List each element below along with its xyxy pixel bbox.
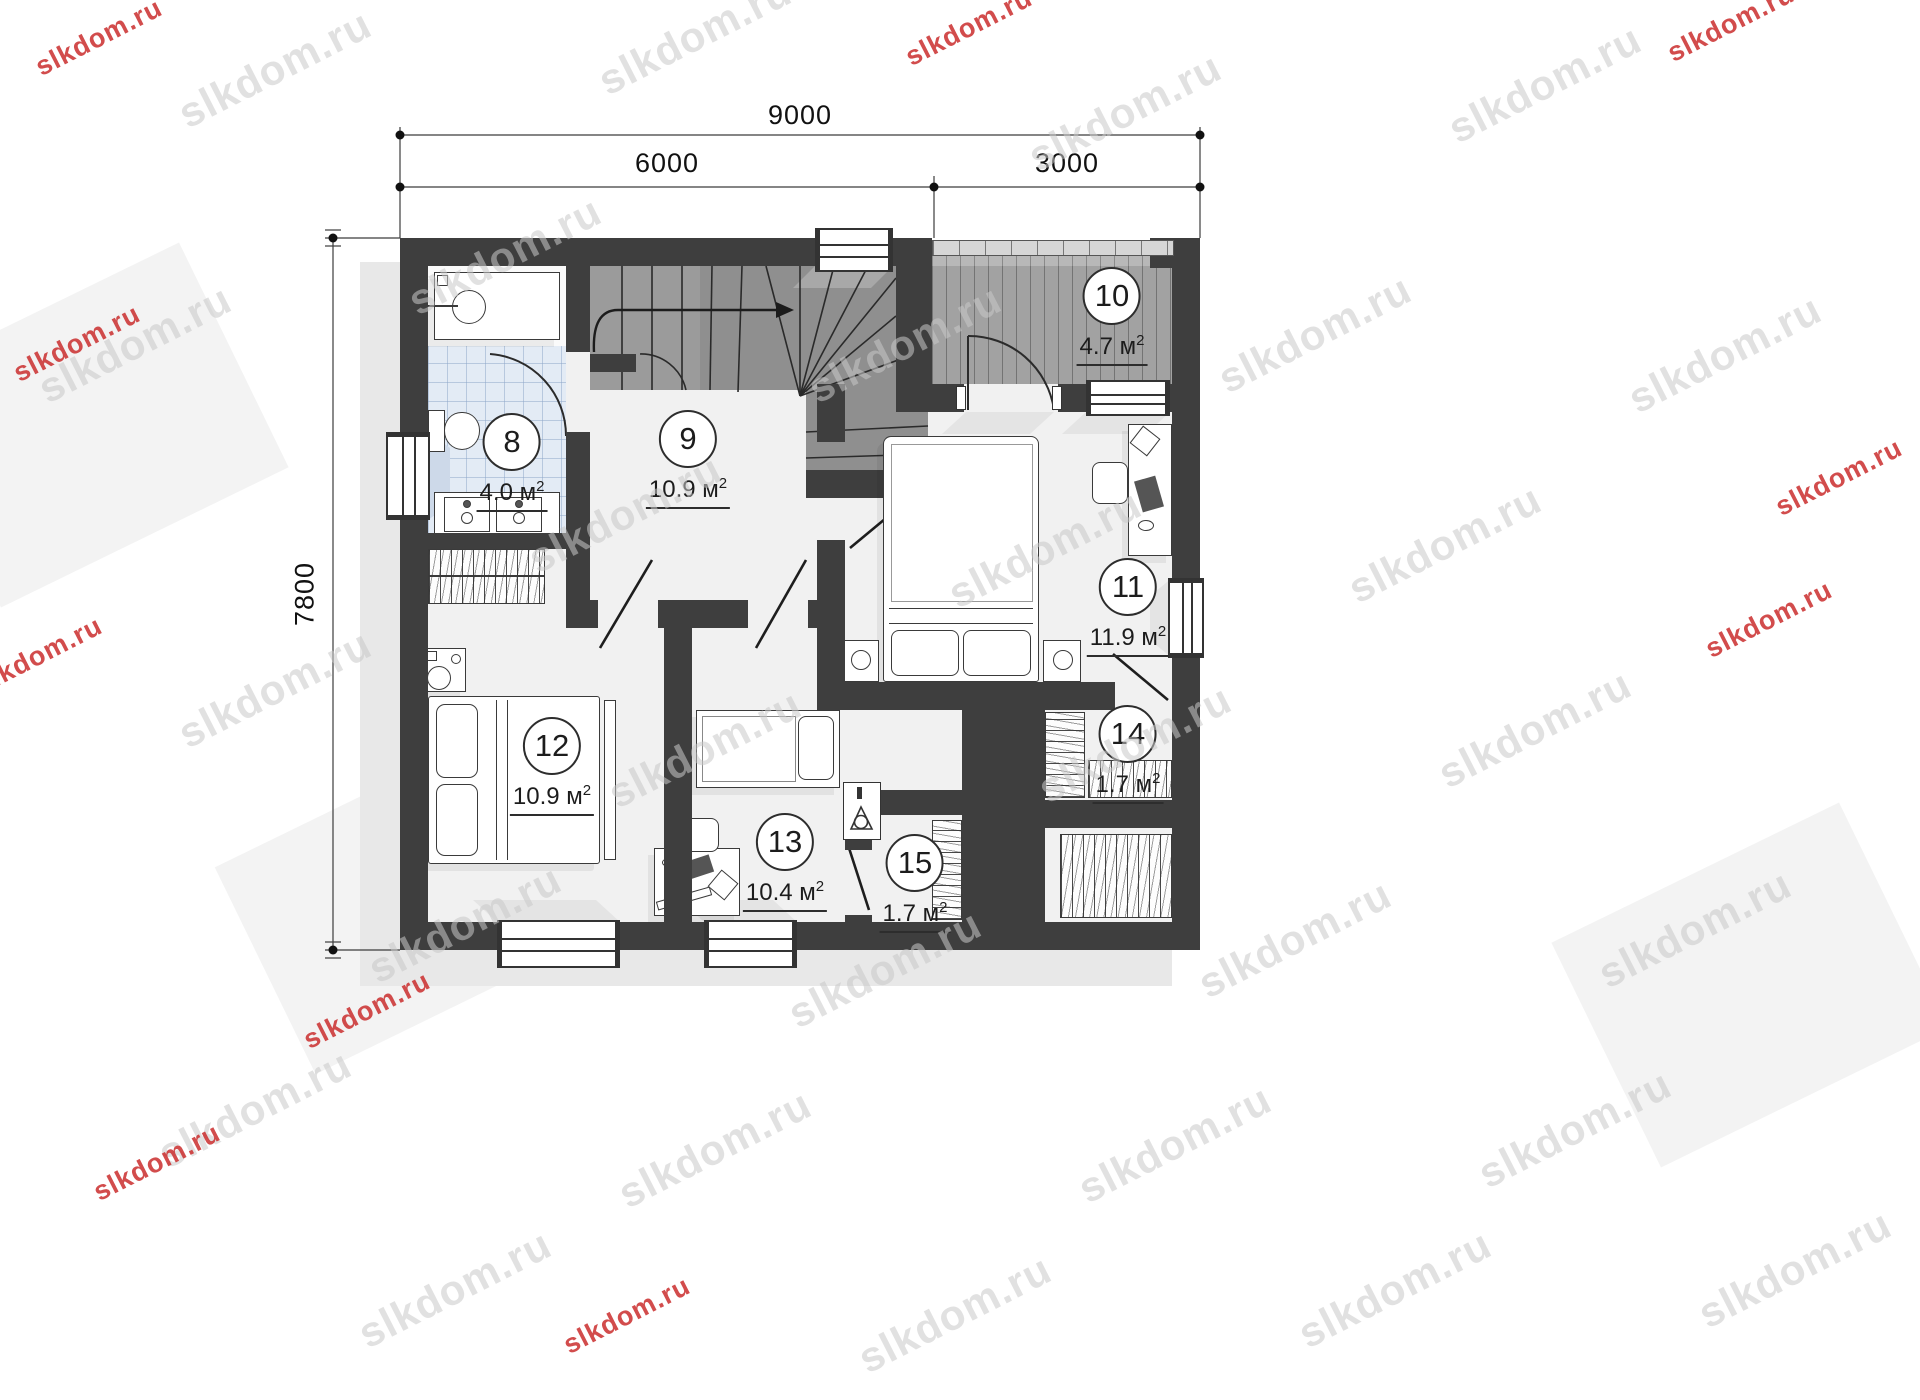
wall-top <box>400 238 815 266</box>
room-number: 9 <box>659 410 717 468</box>
watermark: slkdom.ru <box>591 0 800 105</box>
washing-machine-drum <box>427 666 451 690</box>
wall-left <box>400 520 428 950</box>
floor-plan-canvas: 8 4.0 м2 9 10.9 м2 10 4.7 м2 11 11.9 м2 … <box>0 0 1920 1400</box>
wall-bottom <box>620 922 704 950</box>
wall-bottom <box>797 922 1200 950</box>
watermark-red: slkdom.ru <box>0 610 108 700</box>
background-shape <box>1551 803 1920 1168</box>
washing-machine-knob <box>451 654 461 664</box>
watermark: slkdom.ru <box>1341 475 1550 613</box>
room-area: 10.9 м2 <box>510 782 594 816</box>
watermark: slkdom.ru <box>1691 1200 1900 1338</box>
watermark: slkdom.ru <box>1211 265 1420 403</box>
window-room12 <box>497 920 620 968</box>
room-area: 10.4 м2 <box>743 878 827 912</box>
room-number: 14 <box>1099 705 1157 763</box>
room-label-11: 11 11.9 м2 <box>1087 558 1169 657</box>
wall-room11-bottom <box>817 682 1115 710</box>
wall-room12-13 <box>664 628 692 922</box>
wall-left <box>400 238 428 432</box>
dimension-total-width: 9000 <box>768 100 832 131</box>
room-label-14: 14 1.7 м2 <box>1093 705 1164 804</box>
blanket <box>891 444 1033 602</box>
desk-chair <box>1092 462 1128 504</box>
wall-hall-bottom <box>658 600 748 628</box>
sink-drain <box>513 512 525 524</box>
wall-stair-balcony <box>896 238 932 412</box>
dimension-left-width: 6000 <box>635 148 699 179</box>
lamp <box>851 650 871 670</box>
sink-drain <box>461 512 473 524</box>
wall-room14-bottom <box>1045 800 1172 828</box>
shower-valve-icon <box>437 275 448 286</box>
blanket-fold <box>889 608 1033 624</box>
desk-mouse <box>1138 520 1154 531</box>
room-number: 8 <box>483 413 541 471</box>
watermark: slkdom.ru <box>851 1245 1060 1383</box>
room-label-9: 9 10.9 м2 <box>646 410 730 509</box>
window-bathroom <box>386 432 430 520</box>
window-room11 <box>1168 578 1204 658</box>
watermark-red: slkdom.ru <box>88 1117 225 1207</box>
toilet-tank <box>428 410 445 452</box>
room-area: 4.0 м2 <box>477 478 548 512</box>
bed-bench <box>604 700 616 860</box>
watermark-red: slkdom.ru <box>900 0 1037 73</box>
dimension-right-width: 3000 <box>1035 148 1099 179</box>
watermark: slkdom.ru <box>1441 15 1650 153</box>
wall-room15-left <box>845 915 872 922</box>
watermark: slkdom.ru <box>1291 1220 1500 1358</box>
watermark: slkdom.ru <box>1621 285 1830 423</box>
wall-right <box>1172 658 1200 950</box>
dimension-height: 7800 <box>290 562 321 626</box>
toilet-bowl <box>444 412 480 450</box>
wall-bathroom <box>566 432 590 628</box>
room-label-10: 10 4.7 м2 <box>1077 267 1148 366</box>
room-area: 1.7 м2 <box>1093 770 1164 804</box>
pillow <box>436 704 478 778</box>
room-area: 11.9 м2 <box>1087 623 1169 657</box>
watermark: slkdom.ru <box>1071 1075 1280 1213</box>
room-number: 13 <box>756 813 814 871</box>
watermark-red: slkdom.ru <box>1700 574 1837 664</box>
lamp <box>1053 650 1073 670</box>
room-label-15: 15 1.7 м2 <box>880 834 951 933</box>
watermark: slkdom.ru <box>351 1220 560 1358</box>
room-label-8: 8 4.0 м2 <box>477 413 548 512</box>
pillow <box>436 784 478 856</box>
room-number: 15 <box>886 834 944 892</box>
balcony-door-jamb <box>1052 386 1062 410</box>
room-label-13: 13 10.4 м2 <box>743 813 827 912</box>
faucet <box>463 500 471 508</box>
pillow <box>963 630 1031 676</box>
vacuum-icon <box>844 783 879 838</box>
wall-balcony-bottom <box>1058 384 1086 412</box>
window-balcony <box>1086 380 1170 416</box>
pillow <box>798 716 834 780</box>
watermark: slkdom.ru <box>1191 870 1400 1008</box>
balcony-railing <box>932 240 1174 256</box>
wall-balcony-bottom <box>1170 384 1200 412</box>
wall-bottom <box>400 922 497 950</box>
room-label-12: 12 10.9 м2 <box>510 717 594 816</box>
wardrobe-corner <box>1060 834 1172 918</box>
room-number: 12 <box>523 717 581 775</box>
wall-room15-top <box>872 790 962 815</box>
window-top <box>815 228 893 272</box>
room-number: 11 <box>1099 558 1157 616</box>
room-area: 1.7 м2 <box>880 899 951 933</box>
room-area: 10.9 м2 <box>646 475 730 509</box>
utility-niche <box>843 782 881 840</box>
balcony-door-jamb <box>956 386 966 410</box>
wardrobe-room14 <box>1045 712 1085 798</box>
mattress <box>702 716 796 782</box>
shower-drain-icon <box>452 290 486 324</box>
blanket-fold <box>496 700 508 860</box>
watermark: slkdom.ru <box>611 1080 820 1218</box>
wall-hall-bottom <box>566 600 598 628</box>
watermark-red: slkdom.ru <box>1770 432 1907 522</box>
window-room13 <box>704 920 797 968</box>
wall-closet-block <box>962 710 1045 922</box>
wardrobe-rail <box>428 575 545 577</box>
pillow <box>891 630 959 676</box>
watermark-red: slkdom.ru <box>1662 0 1799 69</box>
plan-shadow-left <box>360 262 400 962</box>
wall-bathroom <box>566 266 590 352</box>
washing-machine-panel <box>427 651 437 661</box>
watermark: slkdom.ru <box>1431 660 1640 798</box>
room-area: 4.7 м2 <box>1077 332 1148 366</box>
room-number: 10 <box>1083 267 1141 325</box>
shower-arm <box>428 305 458 307</box>
wall-bathroom-bottom <box>428 533 590 549</box>
watermark-red: slkdom.ru <box>30 0 167 83</box>
watermark: slkdom.ru <box>171 620 380 758</box>
watermark-red: slkdom.ru <box>558 1270 695 1360</box>
background-shape <box>0 243 289 608</box>
watermark: slkdom.ru <box>171 0 380 138</box>
